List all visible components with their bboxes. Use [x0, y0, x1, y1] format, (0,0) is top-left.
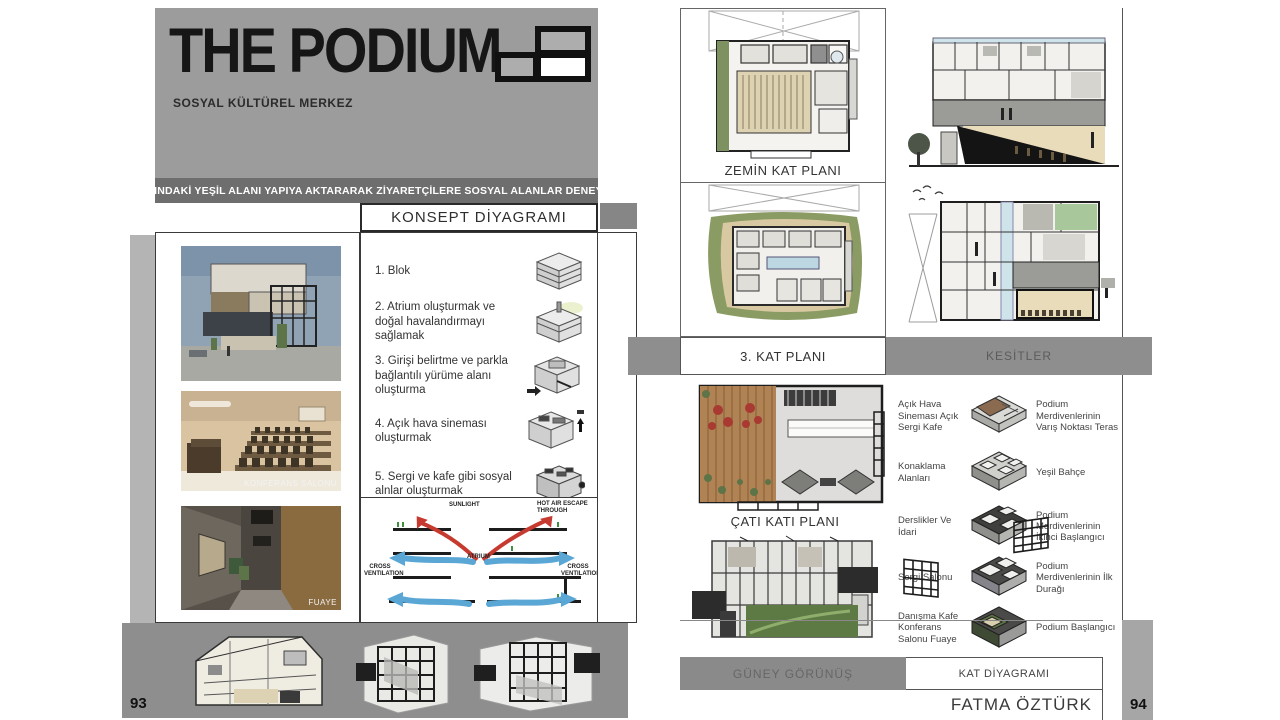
photo-caption: KONFERANS SALONU [244, 479, 337, 488]
sections-caption-band: KESİTLER [886, 337, 1152, 375]
long-section-figure [905, 28, 1123, 180]
floor-axon-icon [962, 553, 1036, 603]
exterior-render-photo [181, 246, 341, 381]
concept-diagram-header: KONSEPT DİYAGRAMI [360, 203, 598, 232]
grid-line [680, 620, 1103, 621]
south-elevation-caption: GÜNEY GÖRÜNÜŞ [733, 667, 853, 681]
concept-item-4: 4. Açık hava sineması oluşturmak [375, 408, 589, 454]
concept-item-label: 5. Sergi ve kafe gibi sosyal alnlar oluş… [375, 470, 523, 499]
concept-item-label: 3. Girişi belirtme ve parkla bağlantılı … [375, 354, 523, 397]
model-photo-2 [466, 631, 606, 715]
third-plan-caption: 3. KAT PLANI [740, 349, 826, 364]
page-subtitle: SOSYAL KÜLTÜREL MERKEZ [173, 96, 353, 110]
legend-label-left: Danışma Kafe Konferans Salonu Fuaye [898, 611, 962, 645]
tagline: FATİH PARKINDAKİ YEŞİL ALANI YAPIYA AKTA… [155, 178, 598, 203]
third-floor-plan-figure [681, 183, 885, 335]
vent-label-cross-right: CROSS VENTILATION [561, 564, 595, 577]
gray-band-stub [628, 337, 680, 375]
south-elevation-figure [690, 533, 894, 655]
massing-entry-icon [523, 353, 585, 399]
title-block: THE PODIUM SOSYAL KÜLTÜREL MERKEZ [155, 8, 598, 178]
empty-column [597, 232, 637, 623]
stair-lattice-icon [1010, 515, 1052, 557]
vent-label-atrium: ATRIUM [467, 554, 490, 561]
sections-caption: KESİTLER [986, 349, 1052, 363]
concept-item-1: 1. Blok [375, 251, 589, 291]
ventilation-diagram: SUNLIGHT HOT AIR ESCAPE THROUGH ATRIUM C… [360, 497, 598, 623]
gray-spacer-cell [600, 203, 637, 229]
cross-section-figure [905, 182, 1123, 334]
third-floor-plan-box [680, 183, 886, 337]
concept-diagram-list: 1. Blok 2. Atrium oluşturmak ve doğal ha… [360, 232, 598, 498]
floor-axon-icon [962, 448, 1036, 498]
section-model-figure [184, 631, 334, 715]
concept-item-label: 2. Atrium oluşturmak ve doğal havalandır… [375, 300, 523, 343]
author-name: FATMA ÖZTÜRK [951, 695, 1092, 715]
floor-diagram-caption: KAT DİYAGRAMI [959, 668, 1050, 680]
legend-label-left: Derslikler Ve İdari [898, 515, 962, 538]
bottom-model-band: 93 [122, 623, 628, 718]
ground-floor-plan-box: ZEMİN KAT PLANI [680, 8, 886, 183]
floor-diagram-caption-cell: KAT DİYAGRAMI [906, 657, 1103, 690]
massing-atrium-icon [523, 300, 585, 344]
stair-lattice-icon [900, 555, 942, 601]
concept-item-label: 4. Açık hava sineması oluşturmak [375, 417, 523, 446]
massing-cinema-icon [523, 408, 585, 454]
vent-label-sunlight: SUNLIGHT [449, 502, 480, 509]
ground-plan-caption: ZEMİN KAT PLANI [681, 163, 885, 178]
legend-label-left: Konaklama Alanları [898, 461, 962, 484]
massing-block-icon [523, 251, 585, 291]
author-row: FATMA ÖZTÜRK [680, 690, 1103, 720]
floor-axon-icon [962, 603, 1036, 653]
legend-row-5: Danışma Kafe Konferans Salonu Fuaye Podi… [898, 603, 1124, 653]
floor-axon-icon [962, 392, 1036, 440]
vent-label-hot-air: HOT AIR ESCAPE THROUGH [537, 501, 589, 514]
right-page-number-column: 94 [1122, 620, 1153, 720]
south-elevation-caption-band: GÜNEY GÖRÜNÜŞ [680, 657, 906, 690]
photos-column: KONFERANS SALONU FUAYE [155, 232, 360, 623]
ground-floor-plan-figure [681, 9, 885, 159]
page-number-right: 94 [1130, 696, 1147, 713]
concept-item-label: 1. Blok [375, 264, 523, 278]
legend-label-left: Açık Hava Sineması Açık Sergi Kafe [898, 399, 962, 433]
roof-plan-caption: ÇATI KATI PLANI [680, 514, 890, 529]
concept-item-2: 2. Atrium oluşturmak ve doğal havalandır… [375, 300, 589, 344]
page-title: THE PODIUM [169, 14, 501, 87]
podium-logo-icon [495, 26, 591, 88]
legend-row-2: Konaklama Alanları Yeşil Bahçe [898, 445, 1124, 500]
legend-label-right: Yeşil Bahçe [1036, 467, 1124, 478]
floor-diagram-legend: Açık Hava Sineması Açık Sergi Kafe Podiu… [898, 387, 1124, 653]
photo-caption: FUAYE [308, 598, 337, 607]
roof-plan-figure [688, 382, 892, 512]
legend-label-right: Podium Merdivenlerinin Varış Noktası Ter… [1036, 399, 1124, 433]
legend-label-right: Podium Merdivenlerinin İlk Durağı [1036, 561, 1124, 595]
legend-label-right: Podium Başlangıcı [1036, 622, 1124, 633]
portfolio-spread: THE PODIUM SOSYAL KÜLTÜREL MERKEZ FATİH … [0, 0, 1280, 720]
vent-label-cross-left: CROSS VENTILATION [364, 564, 396, 577]
third-plan-caption-cell: 3. KAT PLANI [680, 337, 886, 375]
page-number-left: 93 [130, 695, 147, 712]
legend-row-1: Açık Hava Sineması Açık Sergi Kafe Podiu… [898, 387, 1124, 445]
model-photo-1 [354, 631, 454, 715]
conference-hall-photo: KONFERANS SALONU [181, 391, 341, 491]
concept-item-3: 3. Girişi belirtme ve parkla bağlantılı … [375, 353, 589, 399]
foyer-photo: FUAYE [181, 506, 341, 610]
